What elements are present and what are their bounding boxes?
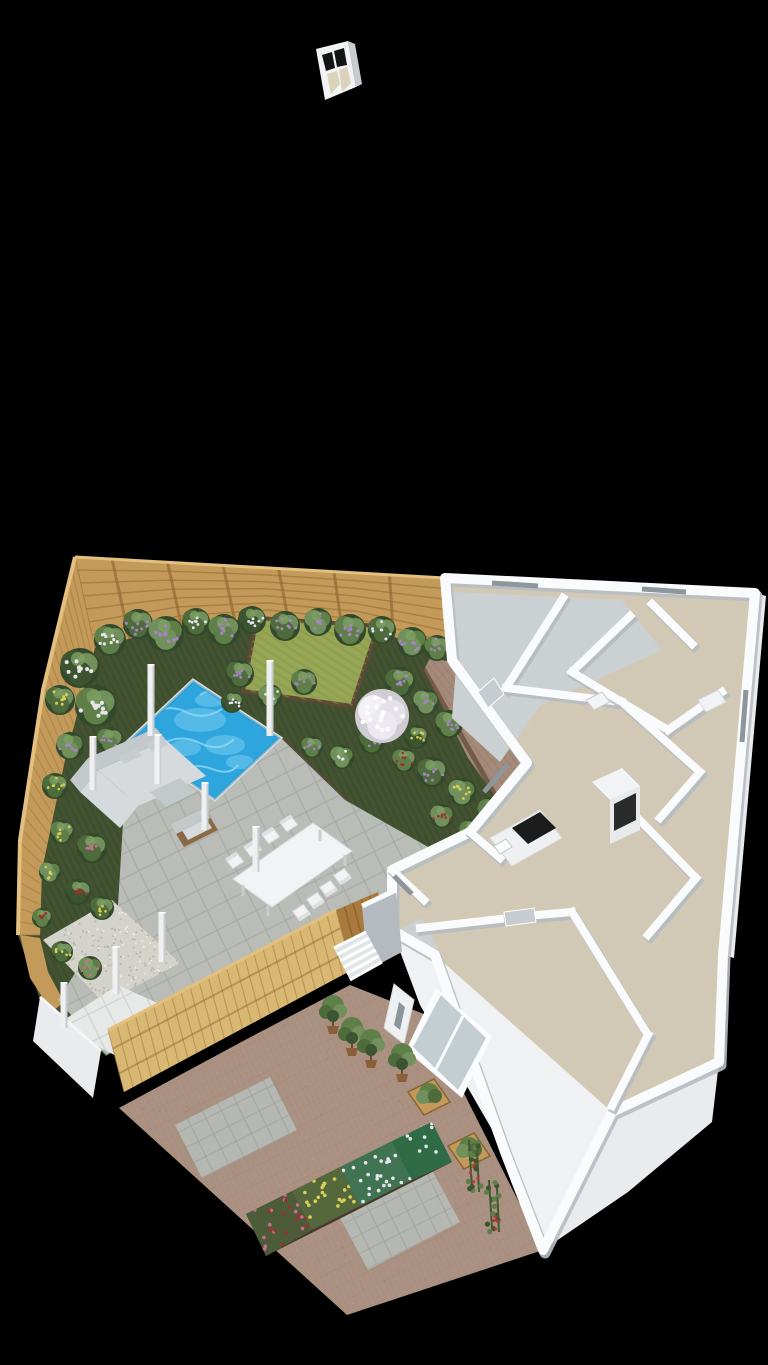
flower-dot	[308, 675, 311, 678]
screenshot-root	[0, 0, 768, 1365]
flower-dot	[60, 784, 63, 787]
garden-bush	[60, 648, 100, 688]
dot	[381, 1267, 383, 1269]
garden-bush	[392, 748, 416, 772]
window-slot	[642, 589, 686, 592]
flower-dot	[339, 634, 342, 637]
flower-dot	[388, 1183, 392, 1187]
garden-bush	[50, 820, 74, 844]
flower-dot	[342, 758, 345, 761]
dot	[509, 1254, 511, 1256]
garden-bush	[90, 896, 114, 920]
bush-highlight	[376, 619, 386, 629]
flower-dot	[91, 848, 94, 851]
dot	[353, 1095, 355, 1097]
flower-dot	[344, 627, 347, 630]
dot	[93, 938, 95, 940]
dot	[105, 970, 107, 972]
flower-dot	[405, 675, 408, 678]
dot	[128, 974, 130, 976]
shrub-dot	[375, 725, 379, 729]
flower-dot	[89, 974, 92, 977]
flower-dot	[59, 829, 62, 832]
dot	[150, 959, 152, 961]
flower-dot	[431, 779, 434, 782]
flower-dot	[257, 620, 260, 623]
flower-dot	[422, 739, 425, 742]
flower-dot	[321, 1191, 325, 1195]
flower-dot	[222, 629, 225, 632]
flower-dot	[385, 638, 388, 641]
flower-dot	[224, 618, 227, 621]
flower-dot	[238, 673, 241, 676]
flower-dot	[134, 633, 137, 636]
dot	[429, 1238, 431, 1240]
flower-dot	[313, 682, 316, 685]
dot	[450, 1275, 452, 1277]
flower-dot	[426, 694, 429, 697]
dot	[469, 1204, 471, 1206]
flower-dot	[434, 1150, 438, 1154]
shrub-dot	[385, 727, 389, 731]
shrub-dot	[380, 728, 384, 732]
flower-dot	[240, 670, 243, 673]
dot	[319, 1236, 321, 1238]
dot	[119, 931, 121, 933]
flower-dot	[432, 770, 435, 773]
flower-dot	[227, 623, 230, 626]
dot	[135, 931, 137, 933]
dot	[186, 1106, 188, 1108]
flower-dot	[268, 1228, 272, 1232]
flower-dot	[313, 748, 316, 751]
flower-dot	[50, 873, 53, 876]
dot	[394, 1134, 396, 1136]
flower-dot	[319, 612, 322, 615]
dot	[347, 1011, 349, 1013]
flower-dot	[140, 628, 143, 631]
pergola-post	[113, 946, 120, 994]
flower-dot	[340, 1200, 344, 1204]
flower-dot	[361, 1200, 365, 1204]
flower-dot	[343, 1188, 347, 1192]
garden-bush	[430, 804, 454, 828]
tomato-leaf	[470, 1153, 475, 1158]
flower-dot	[285, 1231, 289, 1235]
flower-dot	[247, 620, 250, 623]
dot	[186, 1111, 188, 1113]
dot	[350, 1275, 352, 1277]
flower-dot	[59, 832, 62, 835]
flower-dot	[465, 793, 468, 796]
dot	[136, 969, 138, 971]
flower-dot	[367, 1187, 371, 1191]
dot	[355, 1044, 357, 1046]
garden-bush	[221, 691, 243, 713]
flower-dot	[424, 700, 427, 703]
dot	[168, 1136, 170, 1138]
shrub-dot	[368, 718, 372, 722]
dot	[153, 969, 155, 971]
dot	[363, 1057, 365, 1059]
bush-highlight	[64, 735, 74, 745]
flower-dot	[47, 786, 50, 789]
flower-dot	[394, 1154, 398, 1158]
flower-dot	[448, 720, 451, 723]
shrub-dot	[379, 718, 383, 722]
flower-dot	[379, 1159, 383, 1163]
dot	[222, 1177, 224, 1179]
dot	[140, 1101, 142, 1103]
flower-dot	[453, 786, 456, 789]
bush-highlight	[312, 611, 322, 621]
dot	[329, 1024, 331, 1026]
dot	[456, 1180, 458, 1182]
garden-bush	[77, 833, 107, 863]
flower-dot	[396, 760, 399, 763]
garden-bush	[301, 736, 323, 758]
flower-dot	[450, 728, 453, 731]
flower-dot	[238, 702, 241, 705]
dot	[74, 947, 76, 949]
dot	[497, 1245, 499, 1247]
flower-dot	[416, 736, 419, 739]
dot	[289, 1180, 291, 1182]
flower-dot	[422, 732, 425, 735]
flower-dot	[447, 722, 450, 725]
dot	[333, 1275, 335, 1277]
flower-dot	[59, 839, 62, 842]
flower-dot	[457, 786, 460, 789]
dot	[283, 1075, 285, 1077]
dot	[85, 953, 87, 955]
garden-bush	[330, 745, 354, 769]
flower-dot	[309, 744, 312, 747]
flower-dot	[434, 768, 437, 771]
flower-dot	[423, 694, 426, 697]
flower-dot	[131, 626, 134, 629]
flower-dot	[90, 701, 94, 705]
dot	[291, 1104, 293, 1106]
dot	[102, 930, 104, 932]
dot	[443, 1239, 445, 1241]
flower-dot	[55, 777, 58, 780]
garden-bush	[148, 616, 184, 652]
dot	[150, 969, 152, 971]
dot	[352, 1296, 354, 1298]
dot	[304, 1085, 306, 1087]
flower-dot	[218, 623, 221, 626]
flower-dot	[367, 1193, 371, 1197]
dot	[460, 1244, 462, 1246]
flower-dot	[294, 626, 297, 629]
flower-dot	[283, 1212, 287, 1216]
dot	[344, 1047, 346, 1049]
tomato-leaf	[476, 1143, 481, 1148]
dot	[288, 1032, 290, 1034]
garden-bush	[417, 757, 447, 787]
dot	[431, 1119, 433, 1121]
dot	[267, 1070, 269, 1072]
flower-dot	[303, 746, 306, 749]
dot	[347, 1148, 349, 1150]
dot	[310, 1006, 312, 1008]
dot	[377, 1124, 379, 1126]
dot	[234, 1173, 236, 1175]
dot	[328, 1048, 330, 1050]
dot	[134, 939, 136, 941]
dot	[352, 1006, 354, 1008]
garden-bush	[270, 611, 300, 641]
tomato-leaf	[497, 1193, 502, 1198]
dot	[113, 928, 115, 930]
dot	[153, 949, 155, 951]
tomato-fruit	[494, 1227, 497, 1230]
dot	[325, 1052, 327, 1054]
dot	[407, 1041, 409, 1043]
flower-dot	[86, 847, 89, 850]
flower-dot	[100, 701, 104, 705]
tomato-fruit	[476, 1177, 479, 1180]
flower-dot	[220, 632, 223, 635]
dot	[133, 933, 135, 935]
flower-dot	[338, 756, 341, 759]
flower-dot	[275, 619, 278, 622]
flower-dot	[95, 845, 98, 848]
dot	[423, 1072, 425, 1074]
flower-dot	[192, 626, 195, 629]
bush-highlight	[278, 614, 289, 625]
flower-dot	[175, 637, 179, 641]
dot	[345, 1160, 347, 1162]
bush-highlight	[437, 806, 445, 814]
flower-dot	[444, 813, 447, 816]
dot	[284, 1024, 286, 1026]
flower-dot	[468, 791, 471, 794]
shrub-dot	[361, 720, 365, 724]
flower-dot	[437, 815, 440, 818]
dot	[371, 1120, 373, 1122]
flower-dot	[295, 1218, 299, 1222]
flower-dot	[197, 623, 200, 626]
dot	[274, 1051, 276, 1053]
flower-dot	[359, 1179, 363, 1183]
tomato-leaf	[485, 1222, 490, 1227]
flower-dot	[432, 817, 435, 820]
garden-bush	[334, 614, 366, 646]
dot	[490, 1247, 492, 1249]
flower-dot	[288, 626, 291, 629]
dot	[199, 1110, 201, 1112]
dot	[324, 1152, 326, 1154]
dot	[131, 938, 133, 940]
dot	[387, 1098, 389, 1100]
flower-dot	[284, 1198, 288, 1202]
dot	[127, 984, 129, 986]
dot	[336, 1130, 338, 1132]
dot	[142, 979, 144, 981]
bush-highlight	[190, 611, 200, 621]
flower-dot	[309, 740, 312, 743]
flower-dot	[98, 907, 101, 910]
flower-dot	[424, 779, 427, 782]
flower-dot	[376, 1174, 380, 1178]
dot	[338, 1269, 340, 1271]
flower-dot	[450, 724, 453, 727]
dot	[351, 1012, 353, 1014]
flower-dot	[68, 826, 71, 829]
dot	[365, 1097, 367, 1099]
flower-dot	[110, 641, 113, 644]
dot	[372, 1026, 374, 1028]
garden-bush	[39, 861, 61, 883]
flower-dot	[86, 961, 89, 964]
dot	[126, 926, 128, 928]
flower-dot	[89, 967, 92, 970]
tomato-fruit	[496, 1219, 499, 1222]
flower-dot	[280, 618, 283, 621]
flower-dot	[188, 620, 191, 623]
dot	[318, 1041, 320, 1043]
dot	[70, 933, 72, 935]
flower-dot	[48, 876, 51, 879]
shrub-dot	[381, 710, 385, 714]
tomato-fruit	[492, 1219, 495, 1222]
dot	[122, 943, 124, 945]
dot	[305, 1174, 307, 1176]
dot	[358, 1282, 360, 1284]
dot	[238, 1064, 240, 1066]
pergola-post	[155, 734, 162, 784]
flower-dot	[229, 702, 232, 705]
flower-dot	[65, 660, 69, 664]
dot	[421, 1125, 423, 1127]
dot	[385, 1280, 387, 1282]
flower-dot	[73, 675, 77, 679]
dot	[462, 1110, 464, 1112]
dot	[278, 1076, 280, 1078]
flower-dot	[68, 744, 71, 747]
dot	[394, 1257, 396, 1259]
dot	[76, 970, 78, 972]
garden-bush	[413, 689, 439, 715]
garden-bush	[368, 616, 396, 644]
tomato-leaf	[492, 1204, 497, 1209]
dot	[240, 1082, 242, 1084]
dot	[126, 931, 128, 933]
floorplan-3d-render	[0, 0, 768, 1365]
flower-dot	[399, 639, 402, 642]
shrub-dot	[373, 695, 377, 699]
flower-dot	[403, 642, 406, 645]
dot	[121, 911, 123, 913]
flower-dot	[303, 1191, 307, 1195]
dot	[149, 1128, 151, 1130]
garden-bush	[42, 773, 68, 799]
pergola-post	[148, 664, 155, 736]
tree-foliage	[327, 1010, 339, 1022]
flower-dot	[63, 783, 66, 786]
dot	[113, 942, 115, 944]
flower-dot	[352, 1166, 356, 1170]
dot	[376, 1017, 378, 1019]
dot	[159, 1108, 161, 1110]
plant-pot	[396, 1074, 408, 1082]
flower-dot	[78, 888, 81, 891]
pergola-post	[267, 660, 274, 736]
shrub-dot	[401, 714, 405, 718]
dot	[325, 1248, 327, 1250]
flower-dot	[239, 676, 242, 679]
dot	[211, 1059, 213, 1061]
flower-dot	[99, 914, 102, 917]
garden-bush	[238, 606, 266, 634]
pergola-post	[61, 982, 68, 1028]
dot	[417, 1069, 419, 1071]
bush-highlight	[246, 609, 256, 619]
dot	[253, 1207, 255, 1209]
dot	[130, 970, 132, 972]
flower-dot	[441, 816, 444, 819]
dot	[148, 962, 150, 964]
flower-dot	[317, 1196, 321, 1200]
flower-dot	[96, 967, 99, 970]
flower-dot	[83, 966, 86, 969]
dot	[120, 918, 122, 920]
dot	[234, 1081, 236, 1083]
dot	[73, 958, 75, 960]
bush-highlight	[85, 958, 93, 966]
flower-dot	[374, 742, 377, 745]
flower-dot	[250, 621, 253, 624]
flower-dot	[402, 752, 405, 755]
flower-dot	[301, 1227, 305, 1231]
flower-dot	[264, 693, 267, 696]
garden-bush	[32, 908, 52, 928]
plant-pot	[346, 1048, 358, 1056]
tomato-fruit	[472, 1164, 475, 1167]
flower-dot	[268, 1223, 272, 1227]
flower-dot	[389, 633, 392, 636]
dot	[310, 1041, 312, 1043]
dot	[370, 1018, 372, 1020]
flower-dot	[288, 1206, 292, 1210]
dot	[220, 1097, 222, 1099]
dot	[79, 936, 81, 938]
flower-dot	[104, 910, 107, 913]
flower-dot	[433, 643, 436, 646]
dot	[314, 1122, 316, 1124]
bush-highlight	[443, 713, 453, 723]
flower-dot	[364, 1161, 368, 1165]
flower-dot	[289, 619, 292, 622]
dot	[317, 1257, 319, 1259]
flower-dot	[418, 1149, 422, 1153]
garden-bush	[51, 941, 73, 963]
dot	[157, 965, 159, 967]
pergola-post	[90, 736, 97, 790]
dot	[469, 1192, 471, 1194]
flower-dot	[409, 1137, 413, 1141]
flower-dot	[400, 643, 403, 646]
flower-dot	[233, 674, 236, 677]
flower-dot	[344, 750, 347, 753]
flower-dot	[400, 763, 403, 766]
garden-bush	[226, 660, 254, 688]
tomato-leaf	[478, 1183, 483, 1188]
shrub-dot	[365, 705, 369, 709]
flower-dot	[430, 1126, 434, 1130]
